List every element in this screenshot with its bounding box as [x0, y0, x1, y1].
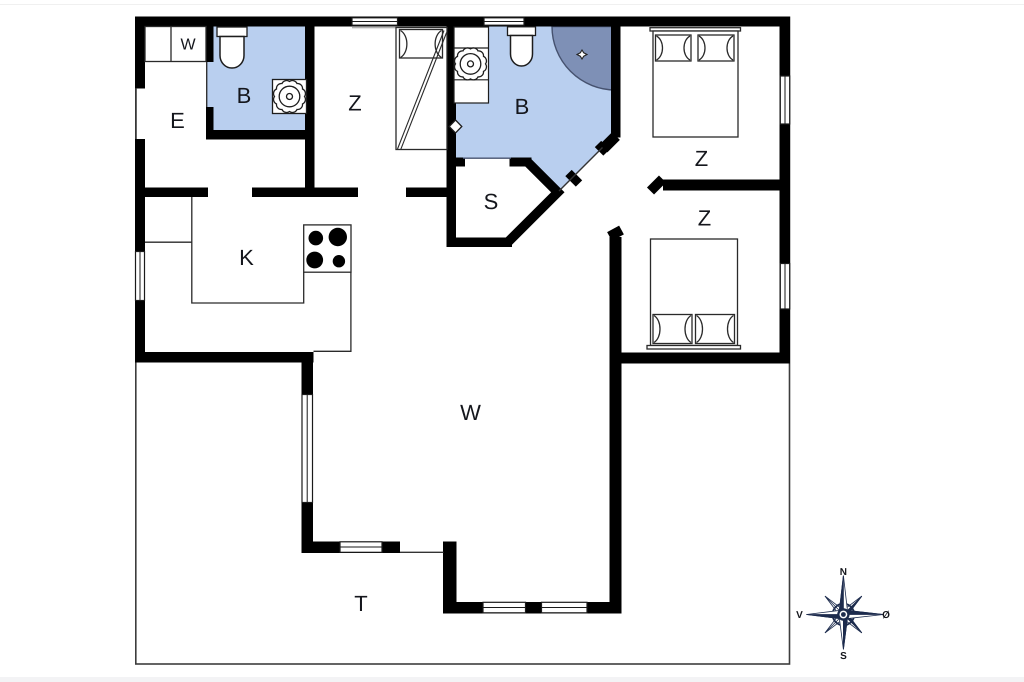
svg-text:N: N — [840, 567, 847, 578]
svg-text:T: T — [354, 591, 367, 616]
svg-text:Z: Z — [698, 206, 711, 231]
svg-text:V: V — [796, 610, 803, 621]
svg-text:Z: Z — [695, 146, 708, 171]
svg-text:Z: Z — [348, 91, 361, 116]
svg-text:B: B — [237, 83, 252, 108]
svg-text:Ø: Ø — [882, 610, 890, 621]
svg-text:W: W — [460, 400, 481, 425]
svg-text:E: E — [170, 108, 185, 133]
svg-text:S: S — [840, 651, 847, 662]
svg-text:B: B — [515, 94, 530, 119]
svg-text:W: W — [180, 37, 196, 54]
svg-text:K: K — [239, 245, 254, 270]
svg-text:S: S — [484, 189, 499, 214]
